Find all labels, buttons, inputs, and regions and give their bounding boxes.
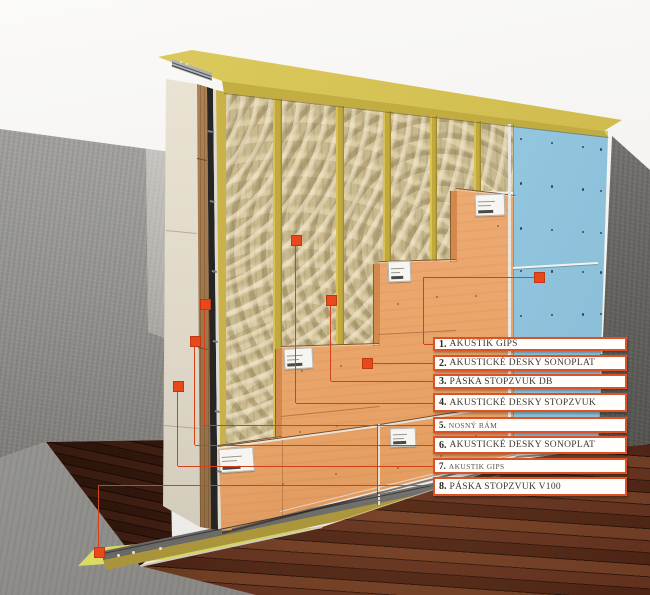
wall-assembly-diagram: 1.AKUSTIK GIPS 2.AKUSTICKÉ DESKY SONOPLA… (0, 0, 650, 595)
legend-box-6: 6.AKUSTICKÉ DESKY SONOPLAT (433, 436, 627, 454)
legend-box-1: 1.AKUSTIK GIPS (433, 337, 627, 351)
legend-label: AKUSTICKÉ DESKY SONOPLAT (450, 440, 596, 450)
legend-box-3: 3.PÁSKA STOPZVUK DB (433, 374, 627, 389)
legend-number: 8. (439, 481, 447, 492)
legend-number: 6. (439, 440, 447, 451)
legend-box-5: 5.NOSNÝ RÁM (433, 417, 627, 433)
legend-number: 4. (439, 397, 447, 408)
legend-number: 5. (439, 420, 446, 430)
legend-box-8: 8.PÁSKA STOPZVUK V100 (433, 477, 627, 496)
legend-label: AKUSTIK GIPS (450, 339, 518, 349)
legend-box-7: 7.AKUSTIK GIPS (433, 458, 627, 474)
legend-label: NOSNÝ RÁM (449, 421, 497, 430)
legend-label: AKUSTICKÉ DESKY STOPZVUK (450, 398, 597, 408)
legend: 1.AKUSTIK GIPS 2.AKUSTICKÉ DESKY SONOPLA… (0, 0, 650, 595)
legend-label: PÁSKA STOPZVUK V100 (450, 482, 561, 492)
legend-number: 1. (439, 339, 447, 350)
legend-label: AKUSTICKÉ DESKY SONOPLAT (450, 358, 596, 368)
legend-number: 2. (439, 358, 447, 369)
legend-box-4: 4.AKUSTICKÉ DESKY STOPZVUK (433, 393, 627, 412)
legend-box-2: 2.AKUSTICKÉ DESKY SONOPLAT (433, 355, 627, 371)
legend-label: PÁSKA STOPZVUK DB (450, 377, 553, 387)
legend-number: 3. (439, 376, 447, 387)
legend-number: 7. (439, 461, 446, 471)
legend-label: AKUSTIK GIPS (449, 462, 505, 471)
